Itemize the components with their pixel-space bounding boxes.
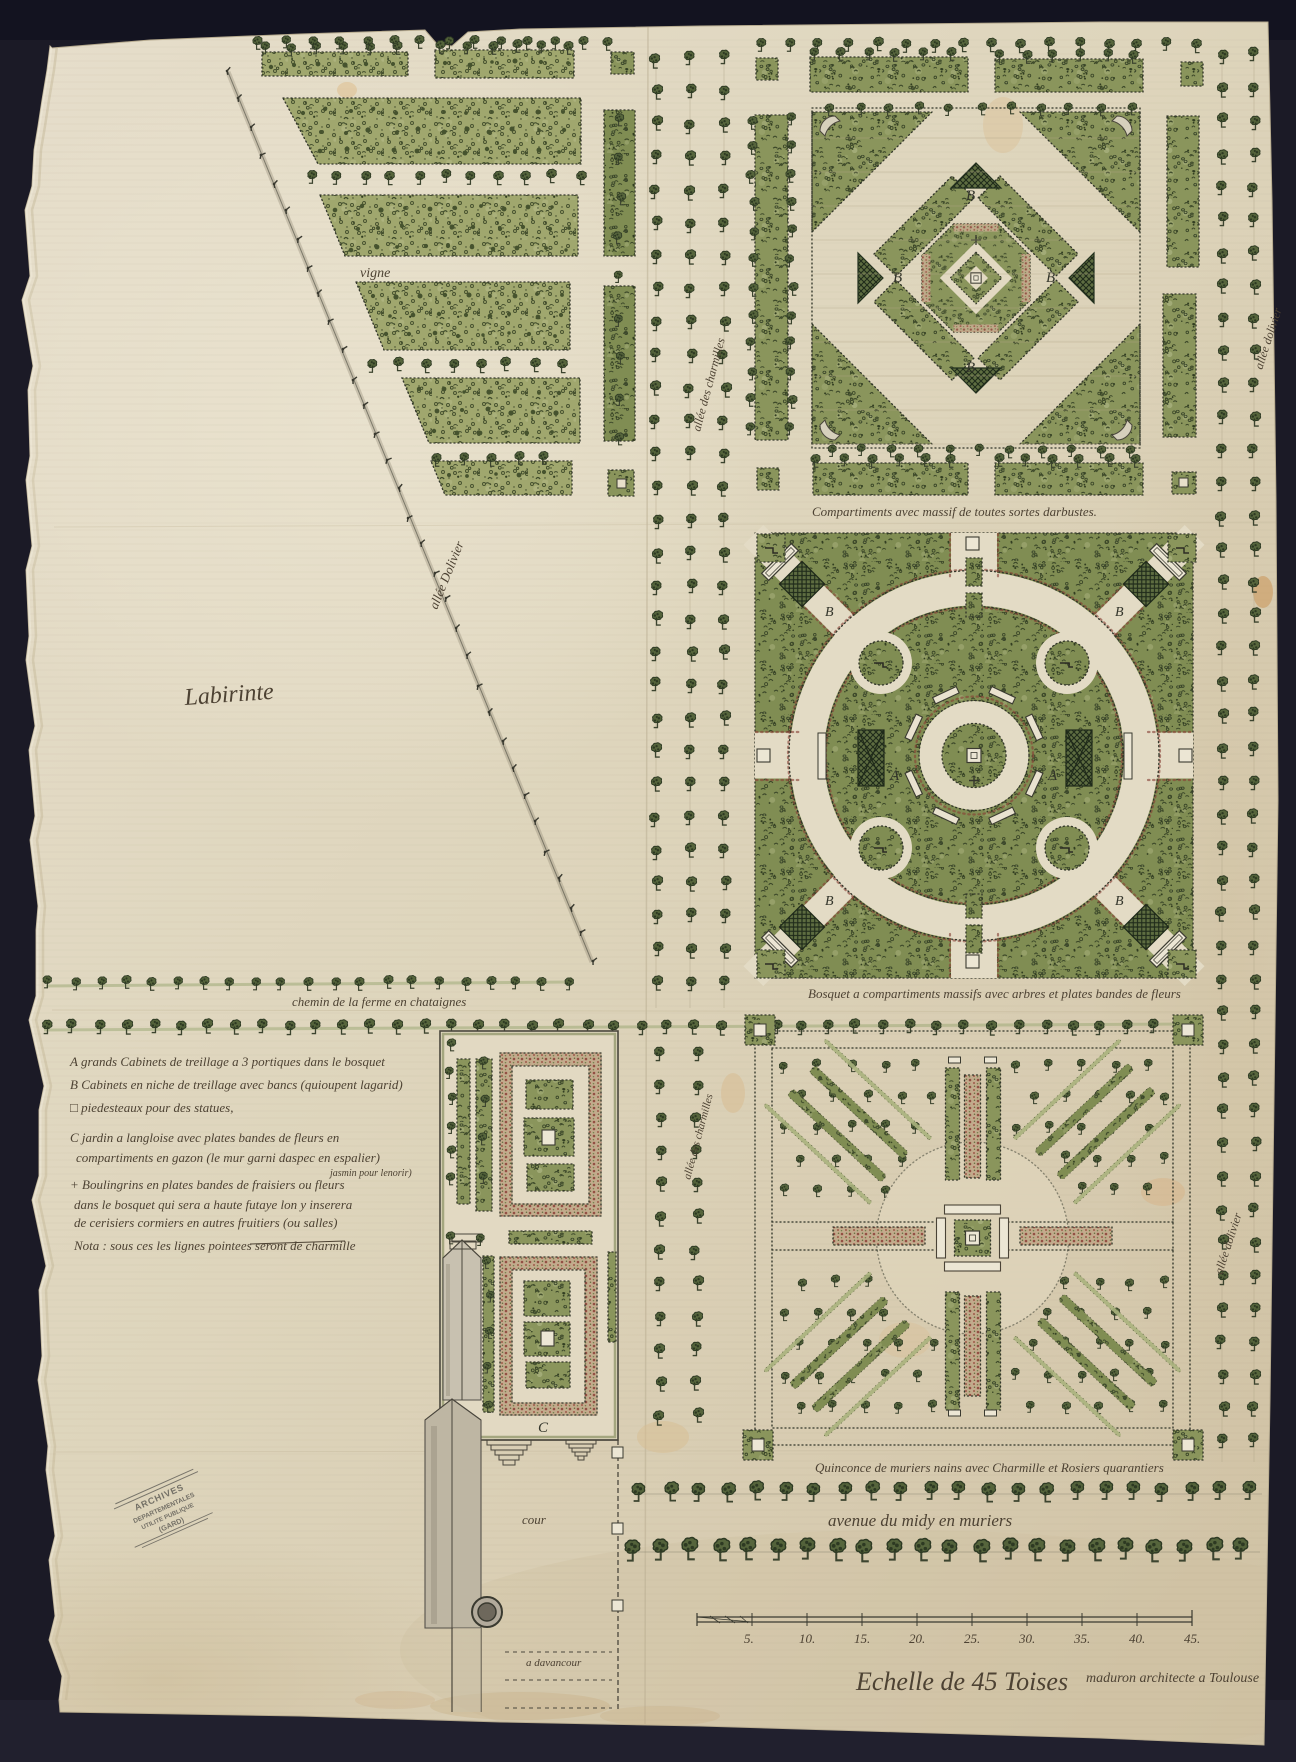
svg-text:20.: 20. — [909, 1631, 925, 1646]
svg-text:B: B — [893, 270, 902, 286]
svg-text:C: C — [538, 1420, 549, 1436]
svg-text:Quinconce de muriers nains ave: Quinconce de muriers nains avec Charmill… — [815, 1460, 1164, 1475]
svg-text:B: B — [1115, 894, 1124, 909]
svg-text:compartiments en gazon (le mur: compartiments en gazon (le mur garni das… — [76, 1150, 380, 1165]
svg-text:Compartiments avec massif de t: Compartiments avec massif de toutes sort… — [812, 504, 1097, 519]
svg-text:B: B — [1115, 605, 1124, 620]
svg-text:45.: 45. — [1184, 1631, 1200, 1646]
svg-text:15.: 15. — [854, 1631, 870, 1646]
svg-text:avenue du midy en muriers: avenue du midy en muriers — [828, 1511, 1013, 1530]
svg-text:B: B — [966, 360, 975, 376]
svg-text:B: B — [966, 188, 975, 204]
svg-text:+ Boulingrins en plates bande: + Boulingrins en plates bandes de fraisi… — [70, 1177, 345, 1192]
svg-text:vigne: vigne — [360, 266, 390, 281]
svg-text:A grands Cabinets de treillag: A grands Cabinets de treillage a 3 porti… — [69, 1054, 385, 1069]
svg-text:dans le bosquet qui sera a hau: dans le bosquet qui sera a haute futaye … — [74, 1197, 353, 1212]
svg-text:10.: 10. — [799, 1631, 815, 1646]
svg-text:25.: 25. — [964, 1631, 980, 1646]
svg-text:B: B — [825, 894, 834, 909]
svg-text:5.: 5. — [744, 1631, 754, 1646]
svg-text:cour: cour — [522, 1512, 547, 1527]
svg-text:B: B — [1046, 270, 1055, 286]
svg-text:Echelle de 45 Toises: Echelle de 45 Toises — [855, 1667, 1068, 1696]
svg-text:maduron architecte a Toulouse: maduron architecte a Toulouse — [1086, 1671, 1259, 1686]
svg-text:a davancour: a davancour — [526, 1657, 582, 1669]
svg-text:□ piedesteaux pour des statue: □ piedesteaux pour des statues, — [70, 1100, 233, 1115]
svg-text:40.: 40. — [1129, 1631, 1145, 1646]
svg-text:30.: 30. — [1018, 1631, 1035, 1646]
svg-text:Nota : sous ces les lignes poi: Nota : sous ces les lignes pointees sero… — [73, 1238, 356, 1253]
svg-text:A: A — [1047, 768, 1058, 784]
svg-text:chemin de la ferme en chataign: chemin de la ferme en chataignes — [292, 994, 466, 1009]
svg-text:Bosquet a compartiments massif: Bosquet a compartiments massifs avec arb… — [808, 986, 1181, 1001]
svg-text:B Cabinets en niche de treill: B Cabinets en niche de treillage avec ba… — [70, 1077, 403, 1092]
svg-text:B: B — [825, 605, 834, 620]
svg-text:C jardin a langloise avec pla: C jardin a langloise avec plates bandes … — [70, 1130, 339, 1145]
svg-text:35.: 35. — [1073, 1631, 1090, 1646]
svg-text:A: A — [889, 768, 900, 784]
svg-text:de cerisiers cormiers en autre: de cerisiers cormiers en autres fruitier… — [74, 1215, 337, 1230]
